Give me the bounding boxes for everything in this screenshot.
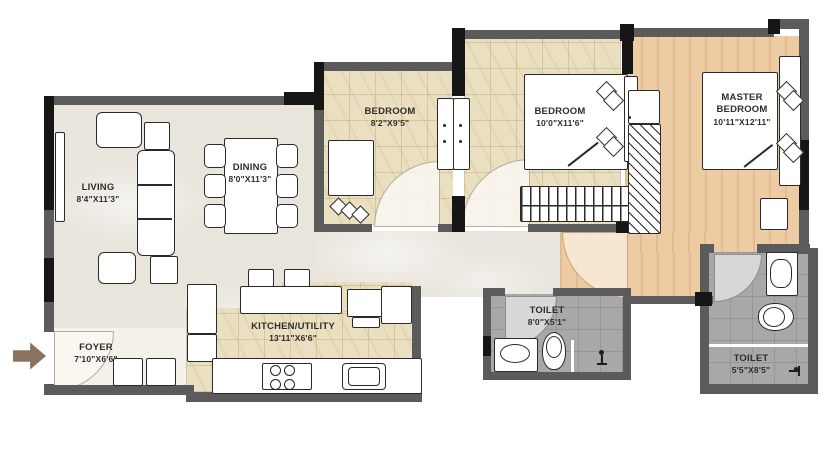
stove-burners	[270, 365, 295, 390]
bedroom1-bottom-wall-left	[314, 224, 372, 232]
toilet2-right-wall	[808, 248, 818, 394]
door-handle	[628, 116, 631, 119]
stool	[284, 269, 310, 287]
bedroom1-top-wall	[314, 62, 462, 71]
wardrobe-hatched	[628, 124, 661, 234]
toilet2-top-wall-left	[700, 244, 714, 253]
wardrobe-handle	[459, 140, 462, 143]
dining-chair	[204, 204, 226, 228]
bedroom2-top-wall	[452, 30, 632, 39]
basin-icon	[500, 344, 530, 363]
shaft-black-top	[452, 28, 465, 96]
living-top-black-block	[284, 92, 314, 105]
dining-chair	[276, 204, 298, 228]
breakfast-counter	[240, 286, 342, 314]
toilet1-top-wall-right	[553, 288, 631, 296]
toilet2-label: TOILET 5'5"X8'5"	[696, 353, 806, 376]
toilet1-left-black	[483, 336, 491, 356]
shower-icon	[595, 350, 607, 366]
bedroom1-dims: 8'2"X9'5"	[330, 118, 450, 129]
kitchen-label: KITCHEN/UTILITY 13'11"X6'6"	[213, 321, 373, 344]
foyer-name: FOYER	[79, 342, 113, 353]
living-dims: 8'4"X11'3"	[58, 194, 138, 205]
bedroom2-dims: 10'0"X11'6"	[500, 118, 620, 129]
toilet1-right-wall	[623, 288, 631, 380]
side-table	[144, 122, 170, 150]
toilet1-bottom-wall	[483, 372, 631, 380]
shower-partition	[571, 340, 574, 372]
tv-unit	[55, 132, 65, 222]
shower-partition	[709, 344, 808, 347]
sofa	[137, 150, 175, 256]
shoe-seat	[146, 358, 176, 386]
dining-table	[224, 138, 278, 234]
kitchen-dims: 13'11"X6'6"	[213, 333, 373, 344]
floor-plan: LIVING 8'4"X11'3" DINING 8'0"X11'3" FOYE…	[0, 0, 831, 453]
living-label: LIVING 8'4"X11'3"	[58, 182, 138, 205]
passage-floor-wood	[625, 253, 712, 297]
foyer-label: FOYER 7'10"X6'6"	[55, 342, 137, 365]
master-bedroom-label: MASTER BEDROOM 10'11"X12'11"	[700, 92, 784, 128]
armchair	[96, 112, 142, 148]
wc-seat	[546, 336, 562, 358]
foyer-bottom-wall	[44, 385, 194, 395]
foyer-dims: 7'10"X6'6"	[55, 354, 137, 365]
dresser-shelf	[628, 90, 660, 124]
wardrobe-panel	[453, 98, 470, 170]
toilet2-bottom-wall	[700, 384, 818, 394]
master-left-black	[622, 28, 633, 74]
wc-seat	[763, 307, 785, 327]
coffee-table	[150, 256, 178, 284]
living-top-wall	[44, 96, 286, 105]
toilet1-left-wall	[483, 288, 491, 380]
bedroom2-label: BEDROOM 10'0"X11'6"	[500, 106, 620, 129]
toilet1-dims: 8'0"X5'1"	[487, 317, 607, 328]
wardrobe-handle	[443, 140, 446, 143]
wardrobe-hangers	[520, 186, 630, 222]
sofa-cushion-line-1	[138, 184, 172, 186]
toilet1-name: TOILET	[530, 305, 565, 316]
corridor-black-block	[695, 292, 712, 306]
desk	[328, 140, 374, 196]
living-name: LIVING	[82, 182, 115, 193]
left-wall-window-black-lower	[44, 258, 54, 302]
stool	[248, 269, 274, 287]
master-name: MASTER BEDROOM	[716, 92, 767, 115]
kitchen-counter	[212, 358, 422, 394]
sink-basin	[348, 367, 380, 386]
left-wall-window-black-upper	[44, 96, 54, 210]
entry-arrow-icon	[13, 340, 46, 372]
wall-joint	[798, 244, 810, 254]
master-dims: 10'11"X12'11"	[700, 117, 784, 128]
accent-chair	[98, 252, 136, 284]
bedroom1-label: BEDROOM 8'2"X9'5"	[330, 106, 450, 129]
sofa-cushion-line-2	[138, 218, 172, 220]
bedroom2-bottom-wall	[528, 224, 622, 232]
fridge	[347, 289, 383, 317]
entry-door-opening	[44, 332, 54, 384]
toilet1-label: TOILET 8'0"X5'1"	[487, 305, 607, 328]
appliance-unit	[381, 286, 412, 324]
bedroom1-left-black	[314, 62, 324, 110]
bedroom2-name: BEDROOM	[534, 106, 585, 117]
master-top-wall	[632, 28, 774, 37]
dining-dims: 8'0"X11'3"	[210, 174, 290, 185]
basin-icon	[770, 259, 792, 288]
toilet2-dims: 5'5"X8'5"	[696, 365, 806, 376]
dining-name: DINING	[233, 162, 267, 173]
wardrobe-handle	[459, 124, 462, 127]
shaft-black-bottom	[452, 196, 465, 232]
master-top-right-black	[768, 19, 780, 34]
bedroom1-name: BEDROOM	[364, 106, 415, 117]
dining-label: DINING 8'0"X11'3"	[210, 162, 290, 185]
bedside-table	[760, 198, 788, 230]
toilet2-name: TOILET	[734, 353, 769, 364]
kitchen-name: KITCHEN/UTILITY	[251, 321, 335, 332]
